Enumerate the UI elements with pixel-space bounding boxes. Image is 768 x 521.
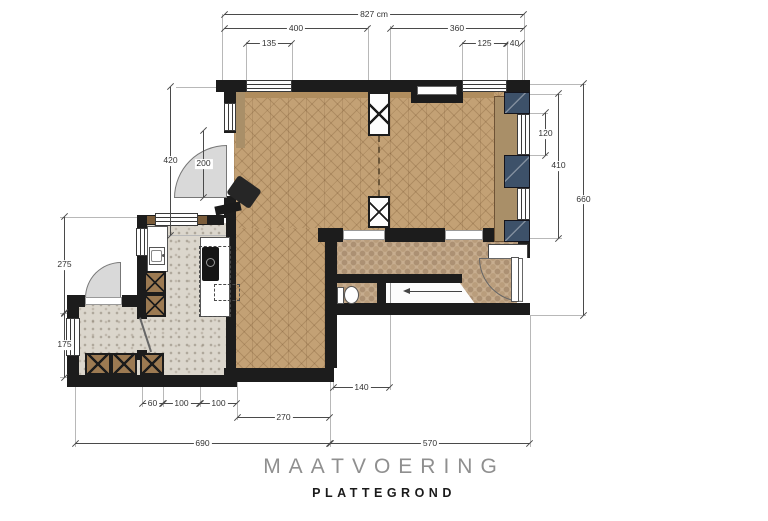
dim-140: 140 — [333, 387, 390, 388]
divider-pier-bottom — [368, 196, 390, 228]
sink-faucet-icon — [162, 254, 165, 257]
drawing-subtitle: PLATTEGROND — [312, 486, 456, 500]
extension-line — [522, 42, 523, 80]
dim-275: 275 — [64, 217, 65, 313]
dim-label: 100 — [172, 399, 190, 409]
cabinet-x — [85, 353, 111, 375]
dim-125: 125 — [462, 43, 507, 44]
dim-label: 275 — [55, 260, 73, 270]
extension-line — [222, 14, 223, 80]
window-entry-left — [66, 318, 80, 356]
navy-pier-bottom — [504, 220, 530, 242]
dim-690: 690 — [75, 443, 330, 444]
extension-line — [60, 217, 137, 218]
dim-label: 420 — [161, 156, 179, 166]
drawing-title: MAATVOERING — [263, 455, 505, 479]
porch-door-opening — [85, 297, 122, 305]
dim-label: 120 — [536, 129, 554, 139]
extension-line — [390, 315, 391, 390]
cabinet-x — [144, 271, 166, 294]
floor-plan-sheet: 827 cm 400 360 135 125 40 420 200 275 17… — [0, 0, 768, 521]
dim-label: 570 — [421, 439, 439, 449]
dim-135: 135 — [246, 43, 292, 44]
dim-label: 175 — [55, 340, 73, 350]
hall-shelf — [488, 244, 528, 259]
extension-line — [530, 315, 586, 316]
living-room-floor — [234, 92, 390, 243]
wall-trim — [236, 92, 368, 98]
dim-200: 200 — [203, 131, 204, 197]
wall-toilet-right — [377, 283, 386, 305]
upper-cabinet-outline — [199, 246, 231, 317]
dim-100b: 100 — [200, 403, 237, 404]
navy-pier-mid — [504, 155, 530, 188]
cabinet-x — [111, 353, 137, 375]
door-swing-porch — [85, 262, 121, 298]
dim-570: 570 — [330, 443, 530, 444]
extension-line — [462, 42, 463, 80]
sliding-door-dashed-line — [378, 136, 380, 196]
divider-pier-top — [368, 92, 390, 136]
dim-label: 690 — [193, 439, 211, 449]
dim-270: 270 — [237, 417, 330, 418]
extension-line — [75, 387, 76, 447]
dim-label: 200 — [194, 159, 212, 169]
wall-lower-right — [325, 240, 337, 368]
wall-hall-top-b — [385, 228, 445, 242]
front-door-leaf — [511, 257, 519, 302]
dim-100a: 100 — [163, 403, 200, 404]
niche-shelf — [417, 86, 457, 95]
dim-label: 100 — [209, 399, 227, 409]
upper-cabinet-outline-small — [214, 284, 240, 301]
wall-hall-bottom — [325, 303, 530, 315]
dim-label: 660 — [574, 195, 592, 205]
extension-line — [530, 315, 531, 447]
doorway-threshold — [445, 230, 483, 240]
sink-basin — [151, 250, 162, 262]
dim-360: 360 — [390, 28, 524, 29]
dim-total-width: 827 cm — [224, 14, 524, 15]
dim-660: 660 — [583, 84, 584, 315]
cabinet-x — [144, 294, 166, 317]
dim-420: 420 — [170, 87, 171, 235]
wall-lower-bottom — [224, 368, 334, 382]
extension-line — [246, 42, 247, 80]
stairs-direction-line — [410, 291, 462, 292]
dim-label: 270 — [274, 413, 292, 423]
living-room-lower-floor — [234, 228, 331, 373]
window-kitchen-top — [155, 213, 198, 226]
dim-175: 175 — [64, 313, 65, 377]
extension-line — [292, 42, 293, 80]
window-right-1 — [517, 114, 530, 155]
dim-label: 125 — [475, 39, 493, 49]
wall-toilet-top — [325, 274, 462, 283]
window-right-2 — [517, 188, 530, 220]
dim-40: 40 — [507, 43, 522, 44]
navy-pier-top — [504, 92, 530, 114]
dim-label: 60 — [146, 399, 159, 409]
window-left-wall — [224, 103, 236, 131]
door-swing-living — [174, 145, 227, 198]
toilet-bowl-icon — [344, 286, 359, 304]
dim-60: 60 — [142, 403, 163, 404]
extension-line — [390, 26, 391, 80]
wall-entry-bottom — [67, 375, 237, 387]
doorway-threshold — [343, 230, 385, 240]
dim-label: 140 — [352, 383, 370, 393]
extension-line — [524, 14, 525, 80]
wall-entry-top-a — [67, 295, 85, 307]
dim-400: 400 — [224, 28, 368, 29]
cabinet-x — [140, 353, 164, 375]
dim-label: 360 — [448, 24, 466, 34]
dim-label: 135 — [260, 39, 278, 49]
toilet-cistern — [337, 287, 344, 304]
corner-wood-panel — [236, 92, 245, 148]
extension-line — [368, 26, 369, 80]
dim-label: 40 — [508, 39, 521, 49]
extension-line — [164, 235, 226, 236]
window-top-right-room — [462, 80, 507, 92]
dim-label: 400 — [287, 24, 305, 34]
extension-line — [530, 84, 586, 85]
dim-120: 120 — [545, 113, 546, 155]
window-top-left-room — [246, 80, 292, 92]
dim-410: 410 — [558, 94, 559, 238]
wall-hall-top-a — [318, 228, 343, 242]
dim-label: 827 cm — [358, 10, 390, 20]
dim-label: 410 — [549, 161, 567, 171]
stairs-direction-arrow-icon — [403, 288, 410, 294]
